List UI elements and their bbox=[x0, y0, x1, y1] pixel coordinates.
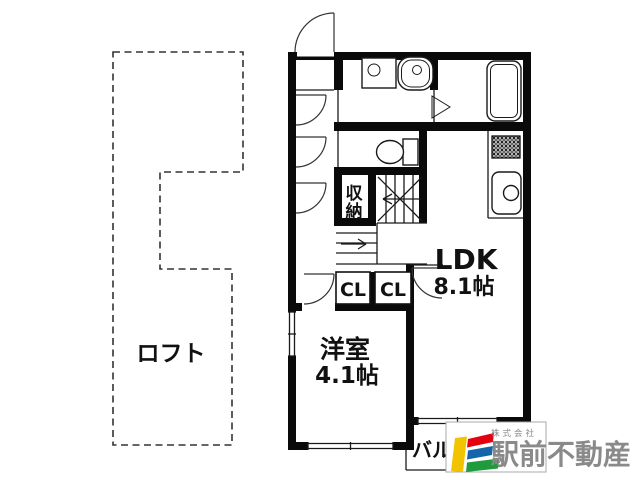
stairs-lower bbox=[336, 233, 377, 253]
loft-label: ロフト bbox=[137, 341, 206, 367]
bathtub bbox=[487, 61, 521, 121]
loft-outline bbox=[113, 52, 243, 445]
window-bedroom-south bbox=[308, 442, 393, 450]
window-left-wall bbox=[288, 312, 296, 356]
bathroom-door-triangle bbox=[432, 96, 450, 118]
washbasin bbox=[398, 57, 433, 90]
bedroom-door-arc bbox=[304, 274, 334, 304]
storage-label-2: 納 bbox=[346, 201, 363, 222]
toilet bbox=[377, 139, 419, 165]
closet-left-label: CL bbox=[340, 279, 366, 301]
corridor-door-arcs bbox=[296, 95, 326, 213]
entrance-door-arc bbox=[295, 13, 334, 52]
floorplan-page: { "labels": { "loft": "ロフト", "storage_ch… bbox=[0, 0, 640, 480]
brand-logo: 株式会社 駅前不動産 bbox=[446, 422, 631, 472]
stairs-lower-arrow bbox=[341, 239, 366, 249]
kitchen-sink bbox=[492, 172, 521, 214]
kitchen-stove bbox=[492, 136, 520, 158]
storage-label-1: 収 bbox=[346, 184, 364, 204]
stairs-upper-arrow bbox=[383, 194, 421, 204]
closet-right-label: CL bbox=[380, 279, 406, 301]
ldk-name-label: LDK bbox=[435, 243, 499, 276]
floorplan-canvas: ロフト bbox=[0, 0, 640, 480]
ldk-size-label: 8.1帖 bbox=[434, 275, 495, 300]
western-room-name-label: 洋室 bbox=[320, 335, 370, 364]
washing-machine-pan bbox=[362, 58, 396, 88]
brand-name: 駅前不動産 bbox=[491, 438, 631, 471]
western-room-size-label: 4.1帖 bbox=[315, 363, 379, 389]
